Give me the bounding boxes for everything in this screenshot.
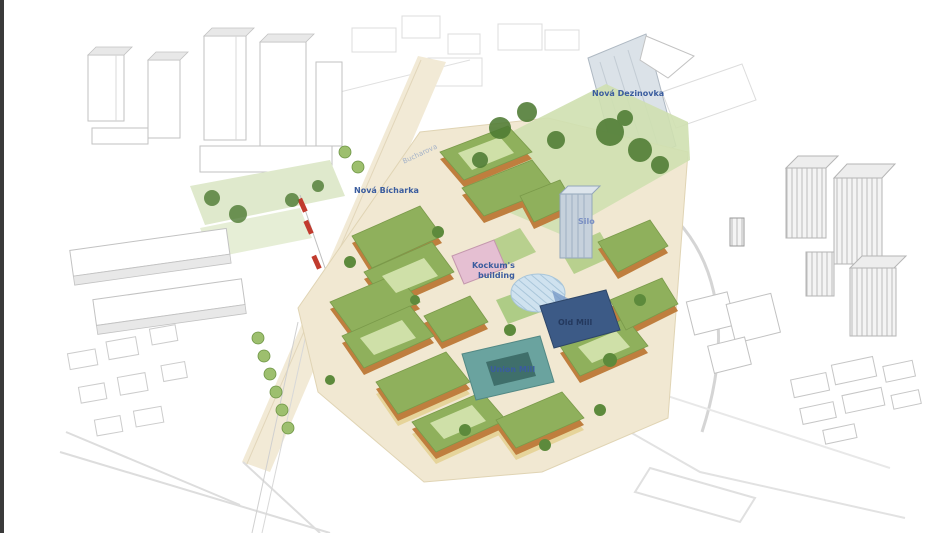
context-towers-top-left: [88, 28, 342, 172]
masterplan-canvas: Nová Dezinovka Nová Bícharka Bucharova S…: [0, 0, 950, 533]
context-houses-far-right: [789, 349, 925, 449]
context-slabs-mid-left: [70, 227, 246, 336]
label-silo: Silo: [578, 217, 595, 226]
label-union-mill: Union Mill: [490, 365, 535, 374]
masterplan-illustration: Nová Dezinovka Nová Bícharka Bucharova S…: [0, 0, 950, 533]
label-station: Nová Bícharka: [354, 186, 419, 195]
context-houses-bottom-left: [66, 324, 195, 438]
label-old-mill: Old Mill: [558, 318, 593, 327]
context-boxes-mid-right: [686, 282, 786, 376]
left-edge-bar: [0, 0, 4, 533]
context-top-center-sketch: [340, 16, 579, 92]
label-central-building-line1: Kockum's: [472, 261, 515, 270]
label-central-building-line2: building: [478, 271, 515, 280]
label-nova-dezinovka: Nová Dezinovka: [592, 89, 664, 98]
